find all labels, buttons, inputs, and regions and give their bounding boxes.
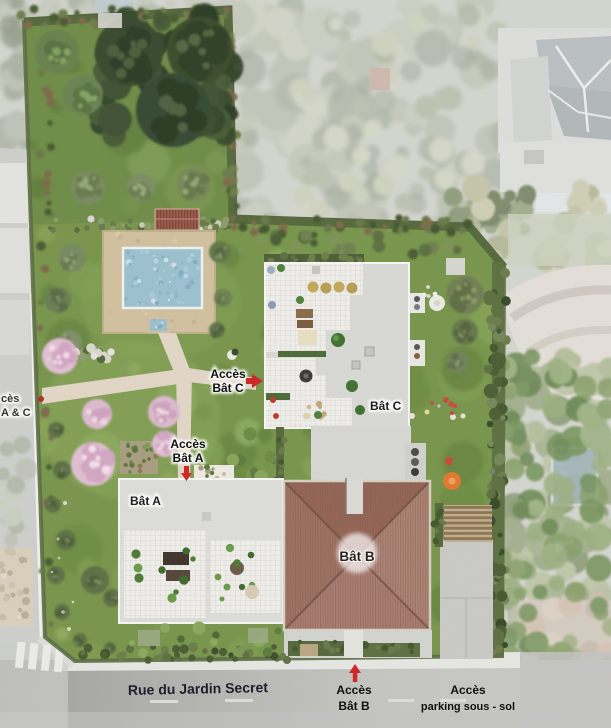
svg-text:Bât C: Bât C [212, 381, 244, 395]
svg-text:A & C: A & C [1, 407, 31, 419]
svg-text:Bât B: Bât B [338, 699, 370, 713]
svg-text:cès: cès [1, 393, 19, 405]
svg-text:Accès: Accès [170, 437, 206, 451]
svg-text:parking sous - sol: parking sous - sol [421, 701, 515, 713]
svg-text:Accès: Accès [210, 367, 246, 381]
svg-text:Accès: Accès [336, 683, 372, 697]
svg-text:Bât A: Bât A [173, 451, 204, 465]
svg-text:Rue du Jardin Secret: Rue du Jardin Secret [128, 679, 269, 698]
svg-text:Accès: Accès [450, 683, 486, 697]
